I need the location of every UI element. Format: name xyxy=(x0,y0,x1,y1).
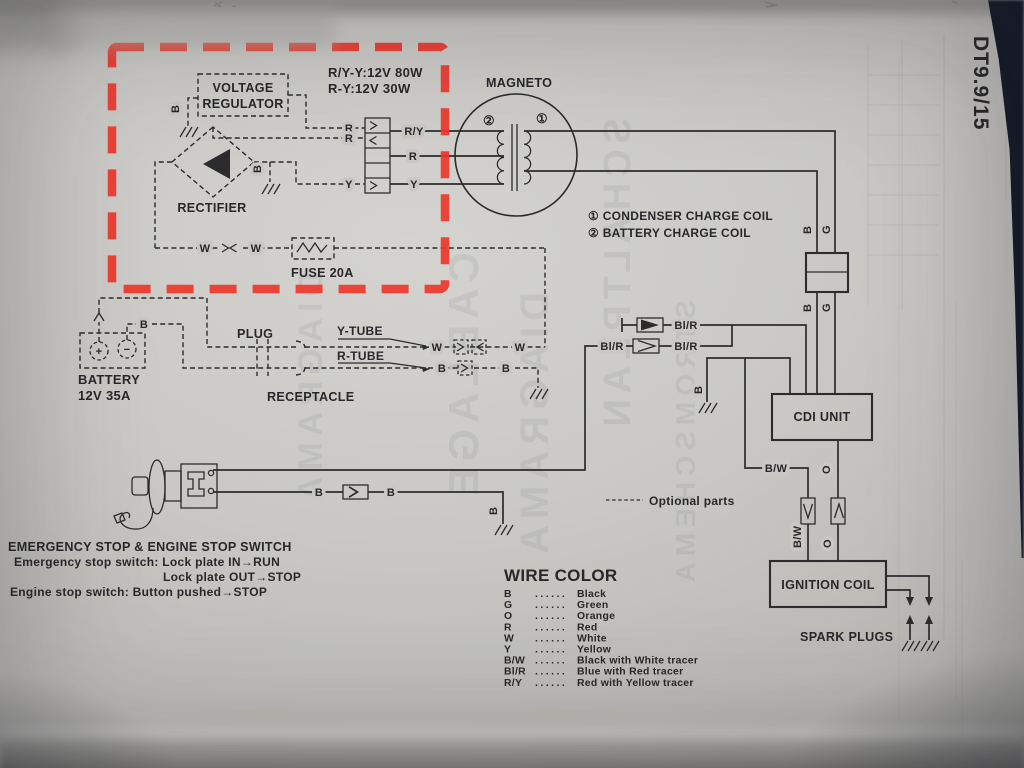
ground-icon xyxy=(921,641,939,651)
wire-label: W xyxy=(432,342,443,354)
legend-dots: ...... xyxy=(535,667,567,678)
connector-icon xyxy=(835,504,844,518)
legend-title: WIRE COLOR xyxy=(504,566,618,585)
connector-icon xyxy=(370,137,377,145)
wire-label: Y xyxy=(345,179,353,191)
legend-dots: ...... xyxy=(535,622,567,633)
wire-label: W xyxy=(251,243,262,255)
legend-code: W xyxy=(504,633,514,644)
multi-pin-connector: R R Y xyxy=(345,118,390,193)
wire-label: W xyxy=(515,342,526,354)
arrow-icon xyxy=(906,597,914,606)
legend-dots: ...... xyxy=(535,589,567,600)
r-tube-label: R-TUBE xyxy=(337,349,384,363)
connector-icon xyxy=(804,504,813,518)
voltage-regulator-label: VOLTAGE xyxy=(212,81,273,95)
connector-icon xyxy=(94,313,104,321)
core-icon xyxy=(512,124,517,191)
ground-icon xyxy=(902,641,920,651)
wire-label: B xyxy=(170,105,182,113)
stop-switch-drawing xyxy=(114,460,217,529)
fuse-label: FUSE 20A xyxy=(291,266,354,280)
plug-label: PLUG xyxy=(237,327,273,341)
battery-block: + − BATTERY 12V 35A B xyxy=(78,298,250,403)
ignition-coil: IGNITION COIL xyxy=(770,561,886,607)
stop-switch-text: EMERGENCY STOP & ENGINE STOP SWITCH Emer… xyxy=(8,540,301,599)
connector-icon xyxy=(222,244,229,252)
spec-line: R/Y-Y:12V 80W xyxy=(328,65,423,80)
arrow-icon xyxy=(925,597,933,606)
stop-switch-line: Lock plate OUT→STOP xyxy=(163,570,301,584)
optional-parts-label: Optional parts xyxy=(649,494,735,508)
legend-dots: ...... xyxy=(535,600,567,611)
manual-page-photo: DIAGRAMA CABLAGE DIAGRAMA SCHALTPLAN STR… xyxy=(0,0,1024,768)
rectifier-block: RECTIFIER B xyxy=(155,127,365,248)
y-tube-label: Y-TUBE xyxy=(337,324,383,338)
ground-icon xyxy=(495,525,513,535)
legend-dots: ...... xyxy=(535,611,567,622)
fuse-icon xyxy=(297,243,327,252)
wire-label: B xyxy=(802,304,814,312)
coil-2-number: ② xyxy=(483,113,495,128)
wire-label: B xyxy=(693,386,705,394)
arrow-icon xyxy=(906,615,914,624)
ignition-connectors: B/W O xyxy=(792,498,845,561)
legend-code: Bl/R xyxy=(504,667,526,678)
stop-switch-wires: B B B xyxy=(213,346,633,535)
legend-name: Red xyxy=(577,622,598,633)
handwriting-marks xyxy=(214,1,958,7)
wire-label: B xyxy=(438,363,446,375)
legend-name: Black xyxy=(577,589,606,600)
coil-icon xyxy=(524,131,531,184)
arrow-icon xyxy=(925,615,933,624)
wire-label: G xyxy=(821,225,833,234)
wire-label: B xyxy=(387,487,395,499)
wire-label: O xyxy=(822,539,834,548)
legend-line: ② BATTERY CHARGE COIL xyxy=(588,226,751,240)
minus-sign: − xyxy=(124,344,131,356)
lock-plate-icon xyxy=(149,460,165,514)
legend-dots: ...... xyxy=(535,656,567,667)
wire-label: Bl/R xyxy=(674,320,697,332)
rectifier-label: RECTIFIER xyxy=(177,201,246,215)
ground-icon xyxy=(699,403,717,413)
wire-label: B xyxy=(802,226,814,234)
legend-line: ① CONDENSER CHARGE COIL xyxy=(588,209,773,223)
wire-label: B/W xyxy=(765,463,788,475)
ground-icon xyxy=(262,184,280,194)
voltage-regulator-label: REGULATOR xyxy=(202,97,283,111)
legend-name: Blue with Red tracer xyxy=(577,667,683,678)
spark-plugs-label: SPARK PLUGS xyxy=(800,630,893,644)
legend-dots: ...... xyxy=(535,633,567,644)
ghost-word: SCHALTPLAN xyxy=(597,118,639,433)
wire-label: B xyxy=(315,487,323,499)
legend-name: Yellow xyxy=(577,645,612,656)
cdi-unit: B B/W CDI UNIT O xyxy=(693,358,872,498)
wire-label: R xyxy=(345,133,353,145)
page-tag: DT9.9/15 xyxy=(969,36,992,130)
wire-label: W xyxy=(200,243,211,255)
battery-rating: 12V 35A xyxy=(78,388,131,403)
wire-label: B xyxy=(252,165,264,173)
wire-label: Y xyxy=(410,179,418,191)
wiring-diagram: DIAGRAMA CABLAGE DIAGRAMA SCHALTPLAN STR… xyxy=(0,0,1024,768)
plus-sign: + xyxy=(96,346,103,358)
spec-line: R-Y:12V 30W xyxy=(328,81,411,96)
legend-code: R/Y xyxy=(504,678,522,689)
battery-label: BATTERY xyxy=(78,372,140,387)
connector-icon xyxy=(641,320,659,331)
stop-switch-title: EMERGENCY STOP & ENGINE STOP SWITCH xyxy=(8,540,292,554)
ignition-coil-label: IGNITION COIL xyxy=(781,578,874,592)
stop-switch-line: Emergency stop switch: Lock plate IN→RUN xyxy=(14,555,280,569)
diode-icon xyxy=(203,149,230,179)
optional-parts-note: Optional parts xyxy=(606,494,735,508)
magneto: MAGNETO ② ① xyxy=(455,76,577,216)
connector-icon xyxy=(349,487,357,497)
wire-label: Bl/R xyxy=(674,341,697,353)
legend-code: G xyxy=(504,600,512,611)
wire-label: B/W xyxy=(792,525,804,548)
legend-code: B xyxy=(504,589,512,600)
coil-icon xyxy=(497,131,504,184)
legend-name: Black with White tracer xyxy=(577,656,698,667)
stop-switch-line: Engine stop switch: Button pushed→STOP xyxy=(10,585,267,599)
legend-code: R xyxy=(504,622,512,633)
wire-label: R xyxy=(409,151,417,163)
legend-dots: ...... xyxy=(535,678,567,689)
plug-receptacle: PLUG RECEPTACLE Y-TUBE R-TUBE xyxy=(237,324,430,404)
wire-label: O xyxy=(821,465,833,474)
wire-label: Bl/R xyxy=(600,341,623,353)
legend-name: Green xyxy=(577,600,609,611)
legend-code: B/W xyxy=(504,656,525,667)
connector-icon xyxy=(370,122,377,130)
wire-label: B xyxy=(488,507,500,515)
ground-icon xyxy=(180,127,198,137)
connector-icon xyxy=(230,244,237,252)
wire-label: B xyxy=(140,319,148,331)
legend-dots: ...... xyxy=(535,645,567,656)
cdi-unit-label: CDI UNIT xyxy=(794,410,851,424)
wire-label: B xyxy=(502,363,510,375)
legend-name: Red with Yellow tracer xyxy=(577,678,694,689)
connector-icon xyxy=(370,182,377,190)
legend-code: O xyxy=(504,611,512,622)
output-spec: R/Y-Y:12V 80W R-Y:12V 30W xyxy=(328,65,423,96)
coil-1-number: ① xyxy=(536,111,548,126)
legend-name: White xyxy=(577,633,607,644)
connector-icon xyxy=(638,341,655,352)
legend-code: Y xyxy=(504,645,511,656)
wire-label: R/Y xyxy=(404,126,424,138)
magneto-label: MAGNETO xyxy=(486,76,552,90)
receptacle-label: RECEPTACLE xyxy=(267,390,354,404)
wire-label: G xyxy=(821,303,833,312)
ghost-word: DIAGRAMA xyxy=(513,292,557,560)
legend-name: Orange xyxy=(577,611,615,622)
